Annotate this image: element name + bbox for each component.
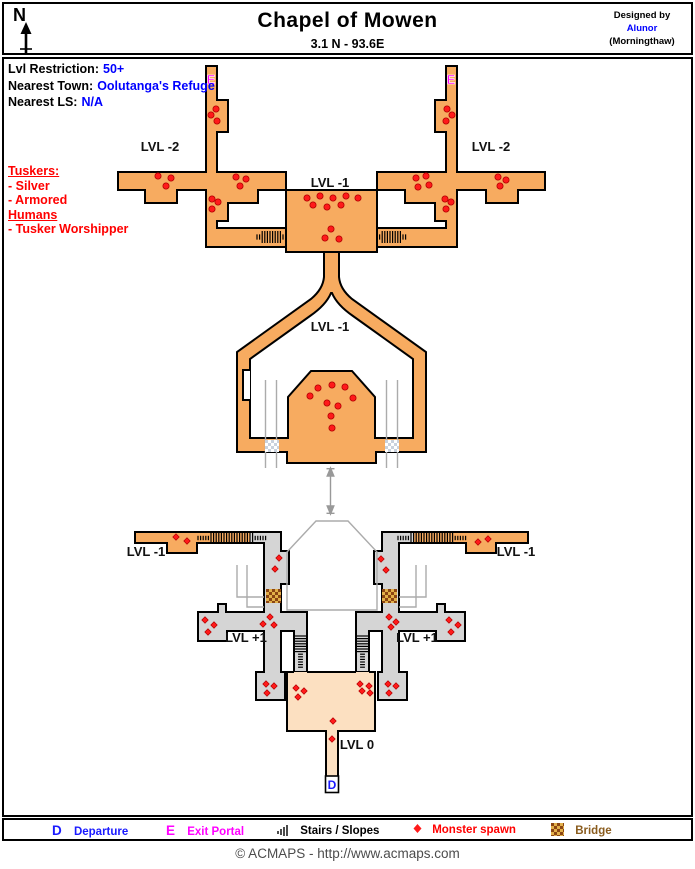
bridge-cell: [388, 595, 391, 598]
map-level-label: LVL -1: [311, 319, 350, 334]
legend-item-stairs: Stairs / Slopes: [276, 823, 379, 840]
bridge-icon-swatch-cell: [554, 832, 557, 835]
legend-bar: D Departure E Exit Portal Stairs / Slope…: [2, 818, 693, 841]
ghost-bracket: [247, 565, 264, 607]
dungeon-info-block: Lvl Restriction:50+ Nearest Town:Oolutan…: [8, 61, 215, 111]
bridge-cell: [266, 595, 269, 598]
monster-spawn-marker: [338, 202, 344, 208]
map-level-label: LVL -1: [311, 175, 350, 190]
legend-item-departure: D Departure: [52, 823, 128, 840]
monster-spawn-marker: [329, 382, 335, 388]
legend-item-bridge: Bridge: [551, 823, 612, 840]
underpass-bridge-cell: [394, 443, 397, 446]
bridge-icon-swatch-cell: [560, 826, 563, 829]
bridge-cell: [269, 598, 272, 601]
bridge-cell: [272, 595, 275, 598]
monster-spawn-marker: [497, 183, 503, 189]
bridge-cell: [394, 595, 397, 598]
level-connector-arrow: [327, 468, 335, 514]
monster-spawn-marker: [423, 173, 429, 179]
chapel-west-alcove: [243, 370, 250, 400]
monster-entry: - Tusker Worshipper: [8, 222, 128, 237]
exit-portal-marker: E: [447, 72, 456, 87]
underpass-bridge-cell: [391, 446, 394, 449]
monster-spawn-marker: [328, 226, 334, 232]
monster-spawn-marker: [413, 175, 419, 181]
map-level-label: LVL -2: [472, 139, 511, 154]
legend-label: Departure: [74, 826, 128, 838]
monster-spawn-marker: [329, 425, 335, 431]
monster-spawn-marker: [335, 403, 341, 409]
departure-marker: D: [328, 778, 337, 792]
bridge-cell: [382, 595, 385, 598]
east-wing-corridor: [376, 66, 545, 247]
bridge-cell: [269, 592, 272, 595]
bridge-icon-swatch-cell: [557, 823, 560, 826]
monster-spawn-marker: [168, 175, 174, 181]
legend-item-monster-spawn: Monster spawn: [412, 823, 516, 840]
map-level-label: LVL -2: [141, 139, 180, 154]
info-label: Lvl Restriction:: [8, 62, 99, 76]
info-label: Nearest LS:: [8, 95, 77, 109]
lower-level-orange-sections: [136, 533, 527, 552]
bridge-cell: [388, 601, 391, 603]
info-label: Nearest Town:: [8, 79, 93, 93]
upper-level-corridors: [118, 66, 545, 463]
map-level-label: LVL 0: [340, 737, 374, 752]
bridge-cell: [385, 592, 388, 595]
monster-spawn-marker: [317, 193, 323, 199]
dungeon-map-canvas: LVL -2LVL -2LVL -1LVL -1LVL -1LVL -1LVL …: [0, 0, 695, 869]
info-row: Nearest Town:Oolutanga's Refuge: [8, 78, 215, 95]
bridge-cell: [275, 598, 278, 601]
underpass-bridge-cell: [268, 449, 271, 452]
bridge-icon-swatch-cell: [557, 835, 560, 836]
bridge-cell: [266, 601, 269, 603]
bridge-icon-swatch-cell: [560, 832, 563, 835]
underpass-bridge-cell: [385, 446, 388, 449]
monster-spawn-marker: [442, 196, 448, 202]
ghost-bracket: [237, 565, 264, 597]
monster-spawn-marker: [209, 196, 215, 202]
underpass-bridge-cell: [274, 443, 277, 446]
monster-spawn-marker: [208, 112, 214, 118]
monster-spawn-marker: [495, 174, 501, 180]
underpass-bridge-cell: [265, 446, 268, 449]
monster-spawn-marker: [426, 182, 432, 188]
monster-entry: - Armored: [8, 193, 128, 208]
legend-item-exit-portal: E Exit Portal: [166, 823, 244, 840]
bridge-icon-swatch-cell: [551, 829, 554, 832]
bridge-icon-swatch-cell: [557, 829, 560, 832]
legend-label: Monster spawn: [432, 824, 516, 836]
monster-spawn-marker: [304, 195, 310, 201]
monster-spawn-marker: [444, 106, 450, 112]
underpass-bridge-cell: [274, 449, 277, 452]
map-level-label: LVL +1: [396, 630, 438, 645]
monster-entry: - Silver: [8, 179, 128, 194]
ghost-bracket: [399, 565, 426, 597]
underpass-bridge-cell: [271, 446, 274, 449]
bridge-cell: [278, 601, 281, 603]
monster-spawn-marker: [310, 202, 316, 208]
bridge-cell: [385, 598, 388, 601]
info-value: Oolutanga's Refuge: [97, 79, 215, 93]
monster-spawn-marker: [350, 395, 356, 401]
bridge-cell: [388, 589, 391, 592]
monster-spawn-marker: [243, 176, 249, 182]
underpass-bridge-cell: [277, 446, 279, 449]
underpass-bridge-cell: [268, 443, 271, 446]
monster-spawn-marker: [448, 199, 454, 205]
legend-label: Bridge: [575, 825, 611, 837]
underpass-bridge-cell: [388, 449, 391, 452]
monster-spawn-marker: [315, 385, 321, 391]
monster-spawn-marker: [355, 195, 361, 201]
acmaps-dungeon-map-page: N Chapel of Mowen 3.1 N - 93.6E Designed…: [0, 0, 695, 869]
underpass-bridge-cell: [397, 446, 399, 449]
monster-spawn-icon: [412, 823, 423, 834]
stairs-icon: [276, 823, 291, 836]
monster-spawn-marker: [214, 118, 220, 124]
info-value: N/A: [81, 95, 103, 109]
underpass-bridge-cell: [397, 440, 399, 443]
monster-spawn-marker: [233, 174, 239, 180]
monster-group-heading: Tuskers:: [8, 164, 128, 179]
monster-spawn-marker: [336, 236, 342, 242]
monster-spawn-marker: [443, 206, 449, 212]
underpass-bridge-cell: [277, 440, 279, 443]
monster-spawn-marker: [415, 184, 421, 190]
exit-portal-symbol: E: [166, 823, 175, 838]
bridge-icon-swatch-cell: [563, 835, 564, 836]
underpass-bridge-cell: [385, 440, 388, 443]
bridge-cell: [394, 589, 397, 592]
map-level-label: LVL -1: [127, 544, 166, 559]
monster-spawn-marker: [324, 204, 330, 210]
legend-label: Stairs / Slopes: [300, 825, 379, 837]
map-level-label: LVL +1: [225, 630, 267, 645]
monster-spawn-marker: [322, 235, 328, 241]
bridge-cell: [391, 598, 394, 601]
monster-spawn-marker: [503, 177, 509, 183]
monster-spawn-marker: [342, 384, 348, 390]
bridge-cell: [275, 592, 278, 595]
monster-spawn-marker: [324, 400, 330, 406]
underpass-bridge-cell: [388, 443, 391, 446]
bridge-cell: [391, 592, 394, 595]
info-row: Lvl Restriction:50+: [8, 61, 215, 78]
bridge-icon-swatch-cell: [551, 835, 554, 836]
monster-spawn-marker: [443, 118, 449, 124]
underpass-bridge-cell: [391, 440, 394, 443]
ghost-bracket: [399, 565, 416, 607]
bridge-icon-swatch-cell: [551, 823, 554, 826]
departure-symbol: D: [52, 823, 62, 838]
bridge-icon-swatch-cell: [563, 823, 564, 826]
bridge-icon-swatch-cell: [554, 826, 557, 829]
monster-spawn-marker: [449, 112, 455, 118]
monster-spawn-marker: [328, 413, 334, 419]
bridge-cell: [272, 601, 275, 603]
map-level-label: LVL -1: [497, 544, 536, 559]
bridge-cell: [394, 601, 397, 603]
monster-spawn-marker: [307, 393, 313, 399]
monster-spawn-marker: [343, 193, 349, 199]
bridge-cell: [266, 589, 269, 592]
underpass-bridge-cell: [265, 440, 268, 443]
ghost-chapel-outline: [287, 521, 377, 610]
underpass-bridge-cell: [394, 449, 397, 452]
monster-group-heading: Humans: [8, 208, 128, 223]
monster-spawn-marker: [330, 195, 336, 201]
bridge-cell: [272, 589, 275, 592]
bridge-cell: [382, 601, 385, 603]
bridge-cell: [278, 589, 281, 592]
legend-label: Exit Portal: [187, 826, 244, 838]
monster-spawn-marker: [209, 206, 215, 212]
monster-spawn-marker: [155, 173, 161, 179]
monster-spawn-marker: [215, 199, 221, 205]
info-row: Nearest LS:N/A: [8, 94, 215, 111]
bridge-cell: [278, 595, 281, 598]
bridge-icon-swatch-cell: [563, 829, 564, 832]
bridge-icon: [551, 823, 564, 836]
info-value: 50+: [103, 62, 124, 76]
monster-key: Tuskers: - Silver - Armored Humans - Tus…: [8, 164, 128, 237]
bridge-cell: [382, 589, 385, 592]
monster-spawn-marker: [163, 183, 169, 189]
monster-spawn-marker: [237, 183, 243, 189]
underpass-bridge-cell: [271, 440, 274, 443]
copyright-footer: © ACMAPS - http://www.acmaps.com: [0, 846, 695, 861]
